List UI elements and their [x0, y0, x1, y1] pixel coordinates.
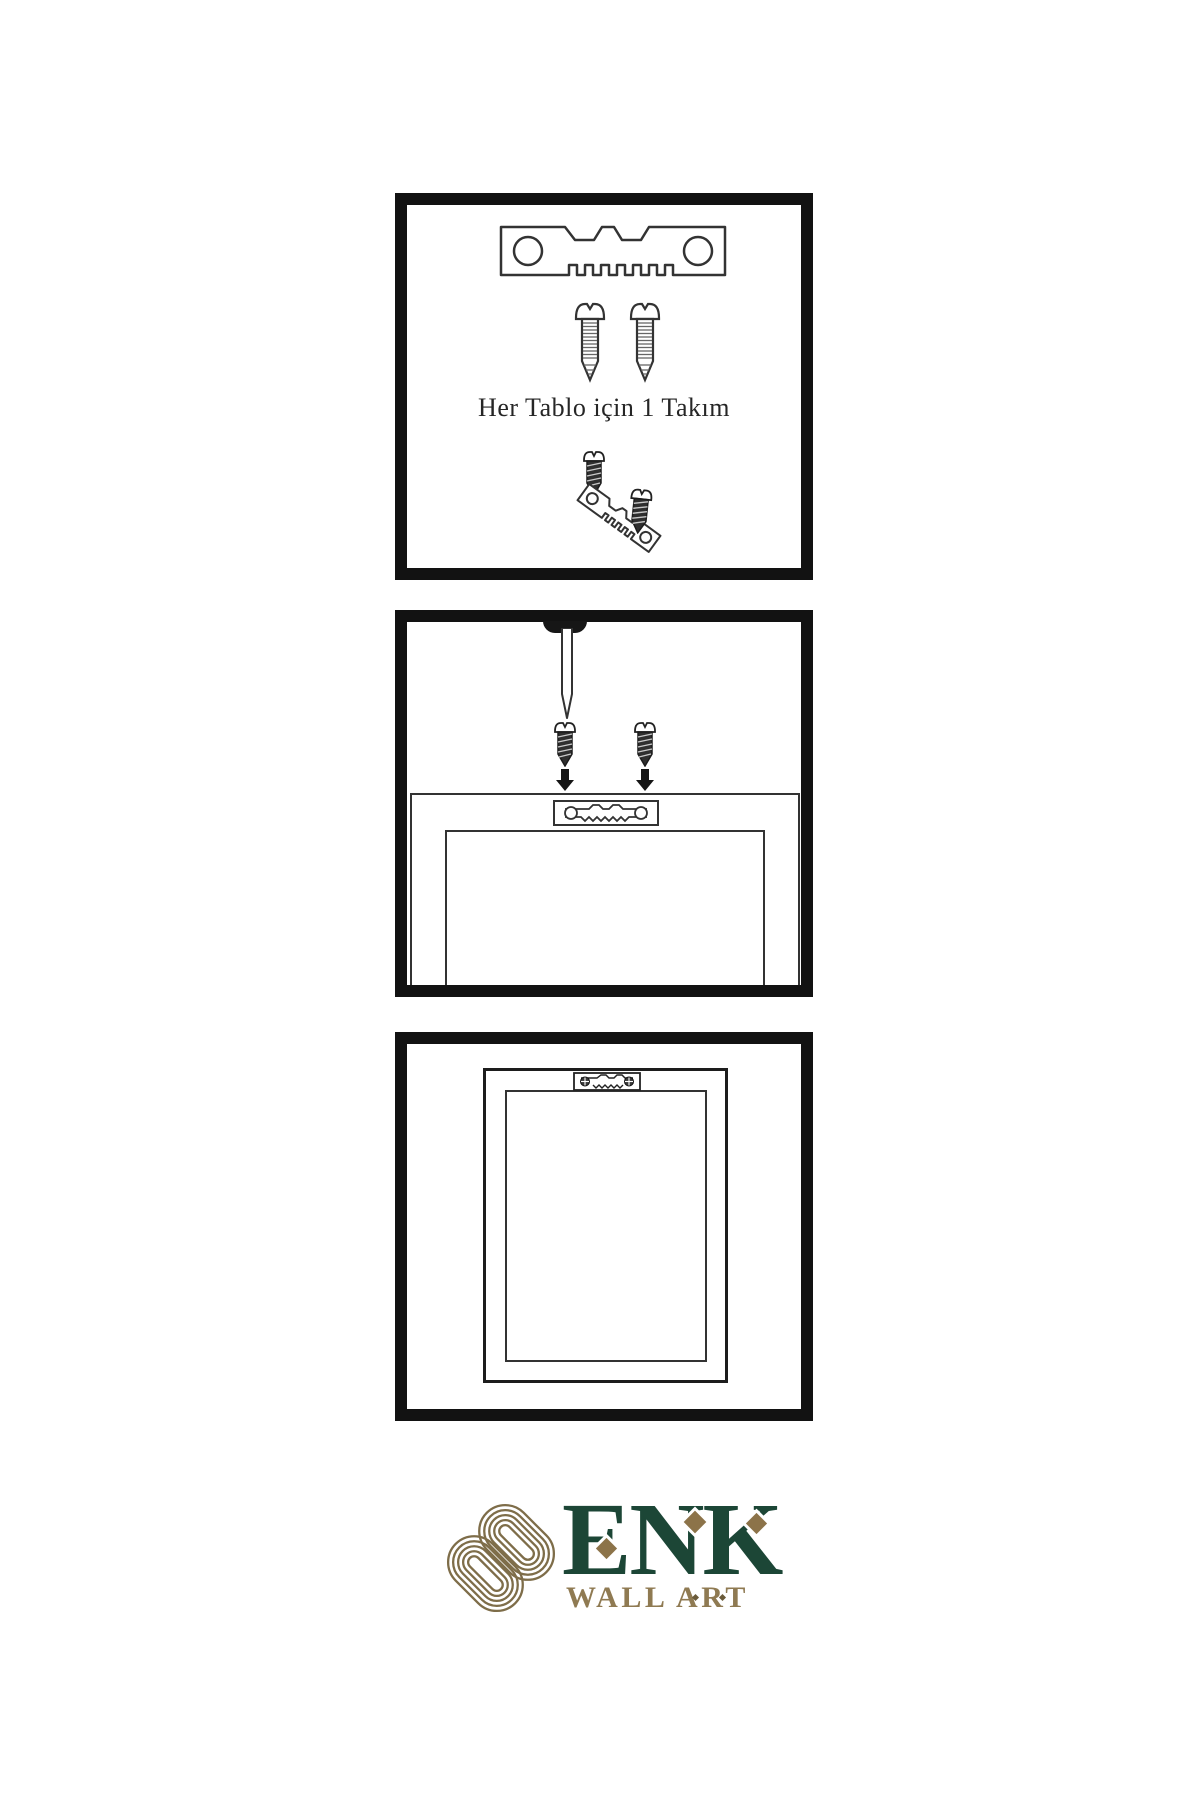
- down-arrow-icon: [636, 769, 654, 791]
- brand-wordmark: ENK WALL ART: [560, 1488, 815, 1638]
- down-arrow-icon: [556, 769, 574, 791]
- panel-step-1: Her Tablo için 1 Takım: [395, 193, 813, 580]
- brand-name: ENK: [562, 1488, 781, 1592]
- knot-icon: [435, 1492, 567, 1624]
- hanger-plate-icon: [553, 800, 659, 826]
- screw-icon: [628, 301, 662, 383]
- dark-screw-icon: [553, 721, 577, 767]
- screw-icon: [573, 301, 607, 383]
- sawtooth-hanger-icon: [497, 223, 729, 279]
- kit-caption: Her Tablo için 1 Takım: [407, 393, 801, 423]
- panel-step-2: [395, 610, 813, 997]
- wall-nail-shaft: [557, 628, 577, 720]
- frame-back-opening: [445, 830, 765, 985]
- frame-hanger-icon: [573, 1072, 641, 1091]
- brand-logo: ENK WALL ART: [435, 1488, 815, 1638]
- frame-front-mat: [505, 1090, 707, 1362]
- screw-into-hanger-group: [570, 448, 675, 553]
- panel-step-3: [395, 1032, 813, 1421]
- dark-screw-icon: [626, 487, 655, 535]
- page: Her Tablo için 1 Takım: [0, 0, 1200, 1800]
- dark-screw-icon: [633, 721, 657, 767]
